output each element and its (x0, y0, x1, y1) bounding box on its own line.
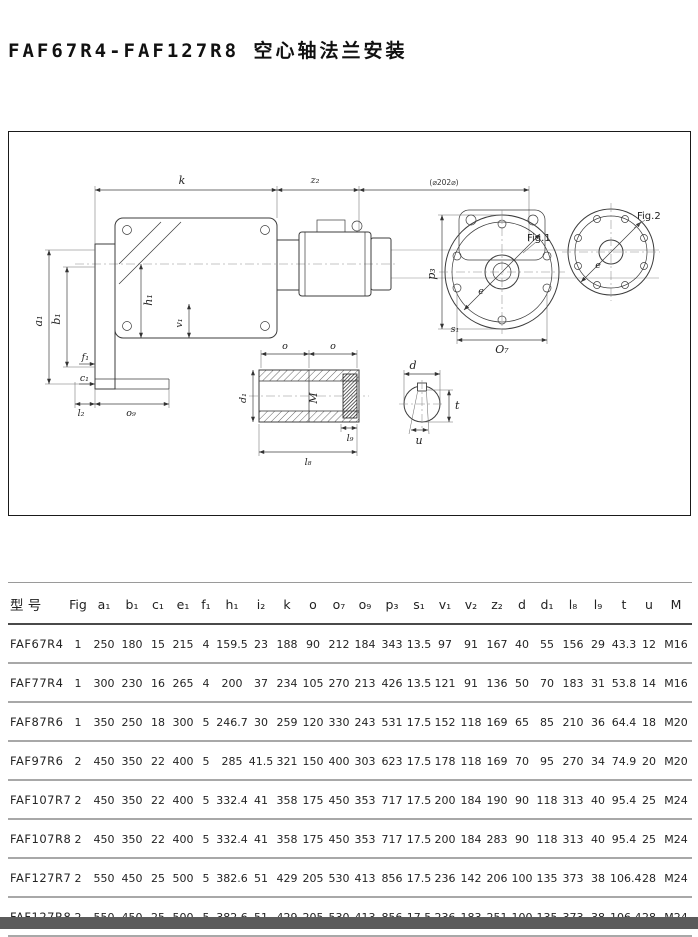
value-cell: 5 (196, 741, 216, 780)
value-cell: 373 (560, 858, 586, 897)
value-cell: 97 (432, 624, 458, 663)
value-cell: 550 (90, 858, 118, 897)
dim-label-a1: a₁ (32, 316, 45, 327)
value-cell: M24 (660, 780, 692, 819)
value-cell: 213 (352, 663, 378, 702)
value-cell: 136 (484, 663, 510, 702)
value-cell: 34 (586, 741, 610, 780)
dim-label-d1: d₁ (238, 393, 249, 403)
value-cell: 313 (560, 780, 586, 819)
value-cell: 300 (90, 663, 118, 702)
value-cell: 382.6 (216, 858, 248, 897)
value-cell: 400 (170, 819, 196, 858)
column-header-6: f₁ (196, 583, 216, 625)
value-cell: 15 (146, 624, 170, 663)
value-cell: 350 (118, 819, 146, 858)
value-cell: 118 (534, 819, 560, 858)
model-cell: FAF107R8 (8, 819, 66, 858)
value-cell: 200 (432, 780, 458, 819)
value-cell: 22 (146, 780, 170, 819)
value-cell: 5 (196, 702, 216, 741)
value-cell: 121 (432, 663, 458, 702)
value-cell: 118 (458, 702, 484, 741)
value-cell: 175 (300, 819, 326, 858)
column-header-14: s₁ (406, 583, 432, 625)
dim-label-t: t (455, 399, 460, 412)
value-cell: 13.5 (406, 663, 432, 702)
value-cell: 37 (248, 663, 274, 702)
value-cell: 5 (196, 858, 216, 897)
value-cell: 4 (196, 624, 216, 663)
value-cell: 106.4 (610, 858, 638, 897)
spec-table-body: FAF67R41250180152154159.5231889021218434… (8, 624, 692, 936)
value-cell: 413 (352, 858, 378, 897)
value-cell: 350 (90, 702, 118, 741)
value-cell: 90 (510, 819, 534, 858)
dim-label-l9: l₉ (347, 433, 354, 444)
value-cell: 4 (196, 663, 216, 702)
value-cell: 717 (378, 780, 406, 819)
value-cell: M20 (660, 702, 692, 741)
column-header-1: Fig (66, 583, 90, 625)
fig1-flange-view: e Fig.1 p₃ s₁ O₇ (425, 210, 565, 356)
column-header-18: d (510, 583, 534, 625)
page-title: FAF67R4-FAF127R8 空心轴法兰安装 (8, 36, 698, 63)
value-cell: 43.3 (610, 624, 638, 663)
value-cell: 188 (274, 624, 300, 663)
value-cell: 184 (352, 624, 378, 663)
value-cell: 105 (300, 663, 326, 702)
dim-label-d: d (409, 359, 416, 372)
value-cell: 259 (274, 702, 300, 741)
dim-label-k: k (179, 174, 186, 187)
column-header-3: b₁ (118, 583, 146, 625)
value-cell: 200 (216, 663, 248, 702)
table-row-FAF127R7: FAF127R72550450255005382.651429205530413… (8, 858, 692, 897)
value-cell: 17.5 (406, 702, 432, 741)
value-cell: 29 (586, 624, 610, 663)
value-cell: 265 (170, 663, 196, 702)
spec-table-header-row: 型 号Figa₁b₁c₁e₁f₁h₁i₂koo₇o₉p₃s₁v₁v₂z₂dd₁l… (8, 583, 692, 625)
value-cell: 118 (458, 741, 484, 780)
model-cell: FAF127R7 (8, 858, 66, 897)
dim-label-v1: v₁ (174, 318, 185, 327)
value-cell: 250 (118, 702, 146, 741)
fig2-flange-view: e Fig.2 (562, 203, 661, 301)
value-cell: 2 (66, 741, 90, 780)
value-cell: 531 (378, 702, 406, 741)
value-cell: 236 (432, 858, 458, 897)
dim-label-b1: b₁ (50, 313, 63, 324)
value-cell: 100 (510, 858, 534, 897)
value-cell: 41 (248, 819, 274, 858)
value-cell: 353 (352, 780, 378, 819)
technical-drawing-panel: k z₂ (⌀202⌀) a₁ b₁ h₁ v₁ f₁ c₁ l₂ o₉ (8, 131, 691, 516)
value-cell: 303 (352, 741, 378, 780)
dim-label-s1: s₁ (451, 324, 460, 335)
value-cell: M20 (660, 741, 692, 780)
column-header-8: i₂ (248, 583, 274, 625)
column-header-20: l₈ (560, 583, 586, 625)
column-header-17: z₂ (484, 583, 510, 625)
dim-label-l8: l₈ (305, 457, 312, 468)
value-cell: 169 (484, 741, 510, 780)
value-cell: 16 (146, 663, 170, 702)
value-cell: 300 (170, 702, 196, 741)
page-footer-bar (0, 917, 698, 929)
column-header-12: o₉ (352, 583, 378, 625)
value-cell: 22 (146, 819, 170, 858)
dim-label-p3: p₃ (425, 268, 438, 279)
value-cell: 18 (638, 702, 660, 741)
value-cell: 17.5 (406, 819, 432, 858)
value-cell: 40 (586, 780, 610, 819)
value-cell: 184 (458, 780, 484, 819)
column-header-24: M (660, 583, 692, 625)
dim-label-e-fig2: e (595, 260, 601, 271)
model-cell: FAF107R7 (8, 780, 66, 819)
dim-label-f1: f₁ (81, 352, 89, 363)
value-cell: 36 (586, 702, 610, 741)
value-cell: 332.4 (216, 780, 248, 819)
value-cell: 215 (170, 624, 196, 663)
dim-label-h1: h₁ (142, 294, 155, 306)
value-cell: 90 (510, 780, 534, 819)
value-cell: M24 (660, 819, 692, 858)
value-cell: 358 (274, 819, 300, 858)
table-row-FAF67R4: FAF67R41250180152154159.5231889021218434… (8, 624, 692, 663)
value-cell: 17.5 (406, 780, 432, 819)
value-cell: 41.5 (248, 741, 274, 780)
value-cell: 152 (432, 702, 458, 741)
dim-label-o-right: o (330, 341, 336, 352)
value-cell: 178 (432, 741, 458, 780)
value-cell: 350 (118, 780, 146, 819)
value-cell: 65 (510, 702, 534, 741)
value-cell: 190 (484, 780, 510, 819)
value-cell: 74.9 (610, 741, 638, 780)
value-cell: 31 (586, 663, 610, 702)
value-cell: 25 (638, 819, 660, 858)
value-cell: 17.5 (406, 858, 432, 897)
value-cell: 450 (326, 819, 352, 858)
model-cell: FAF87R6 (8, 702, 66, 741)
value-cell: 30 (248, 702, 274, 741)
value-cell: 41 (248, 780, 274, 819)
value-cell: 500 (170, 858, 196, 897)
value-cell: 53.8 (610, 663, 638, 702)
value-cell: 1 (66, 624, 90, 663)
column-header-19: d₁ (534, 583, 560, 625)
value-cell: 450 (90, 741, 118, 780)
value-cell: 13.5 (406, 624, 432, 663)
value-cell: 210 (560, 702, 586, 741)
value-cell: 95.4 (610, 819, 638, 858)
value-cell: 40 (510, 624, 534, 663)
value-cell: 40 (586, 819, 610, 858)
value-cell: 14 (638, 663, 660, 702)
model-cell: FAF97R6 (8, 741, 66, 780)
value-cell: 175 (300, 780, 326, 819)
value-cell: 17.5 (406, 741, 432, 780)
value-cell: 234 (274, 663, 300, 702)
value-cell: 12 (638, 624, 660, 663)
value-cell: 429 (274, 858, 300, 897)
value-cell: 5 (196, 819, 216, 858)
value-cell: 400 (326, 741, 352, 780)
value-cell: 450 (90, 819, 118, 858)
value-cell: 332.4 (216, 819, 248, 858)
dim-label-u: u (415, 434, 422, 447)
value-cell: 180 (118, 624, 146, 663)
fig1-label: Fig.1 (527, 233, 551, 244)
dim-label-z2: z₂ (310, 175, 320, 186)
model-cell: FAF67R4 (8, 624, 66, 663)
value-cell: 250 (90, 624, 118, 663)
technical-drawing: k z₂ (⌀202⌀) a₁ b₁ h₁ v₁ f₁ c₁ l₂ o₉ (9, 132, 690, 515)
column-header-11: o₇ (326, 583, 352, 625)
value-cell: 23 (248, 624, 274, 663)
column-header-4: c₁ (146, 583, 170, 625)
value-cell: 85 (534, 702, 560, 741)
column-header-0: 型 号 (8, 583, 66, 625)
value-cell: 55 (534, 624, 560, 663)
value-cell: 230 (118, 663, 146, 702)
value-cell: 70 (510, 741, 534, 780)
value-cell: 330 (326, 702, 352, 741)
model-cell: FAF77R4 (8, 663, 66, 702)
value-cell: 200 (432, 819, 458, 858)
value-cell: 18 (146, 702, 170, 741)
value-cell: 5 (196, 780, 216, 819)
column-header-9: k (274, 583, 300, 625)
dim-label-o9: o₉ (126, 408, 136, 419)
value-cell: 350 (118, 741, 146, 780)
column-header-10: o (300, 583, 326, 625)
column-header-16: v₂ (458, 583, 484, 625)
value-cell: 1 (66, 702, 90, 741)
value-cell: 50 (510, 663, 534, 702)
value-cell: 51 (248, 858, 274, 897)
value-cell: 270 (326, 663, 352, 702)
table-row-FAF97R6: FAF97R6245035022400528541.53211504003036… (8, 741, 692, 780)
value-cell: M16 (660, 663, 692, 702)
table-row-FAF77R4: FAF77R4130023016265420037234105270213426… (8, 663, 692, 702)
column-header-7: h₁ (216, 583, 248, 625)
value-cell: 95.4 (610, 780, 638, 819)
dim-label-l2: l₂ (78, 408, 85, 419)
value-cell: 28 (638, 858, 660, 897)
value-cell: 70 (534, 663, 560, 702)
value-cell: 856 (378, 858, 406, 897)
table-row-FAF107R8: FAF107R82450350224005332.441358175450353… (8, 819, 692, 858)
shaft-section-drawing: d t u (399, 359, 460, 447)
value-cell: 184 (458, 819, 484, 858)
value-cell: 358 (274, 780, 300, 819)
value-cell: 156 (560, 624, 586, 663)
value-cell: 20 (638, 741, 660, 780)
value-cell: 64.4 (610, 702, 638, 741)
dim-label-m: M (307, 392, 320, 405)
value-cell: 91 (458, 663, 484, 702)
value-cell: 150 (300, 741, 326, 780)
value-cell: 167 (484, 624, 510, 663)
value-cell: 25 (638, 780, 660, 819)
value-cell: 321 (274, 741, 300, 780)
value-cell: 90 (300, 624, 326, 663)
table-row-FAF87R6: FAF87R61350250183005246.7302591203302435… (8, 702, 692, 741)
dim-label-o-left: o (282, 341, 288, 352)
value-cell: 623 (378, 741, 406, 780)
value-cell: 450 (90, 780, 118, 819)
column-header-13: p₃ (378, 583, 406, 625)
value-cell: 212 (326, 624, 352, 663)
value-cell: 246.7 (216, 702, 248, 741)
value-cell: 95 (534, 741, 560, 780)
value-cell: 283 (484, 819, 510, 858)
value-cell: 243 (352, 702, 378, 741)
value-cell: 343 (378, 624, 406, 663)
dim-label-c1: c₁ (80, 373, 89, 384)
fig2-label: Fig.2 (637, 211, 661, 222)
column-header-15: v₁ (432, 583, 458, 625)
value-cell: 313 (560, 819, 586, 858)
dim-label-o7: O₇ (495, 343, 509, 356)
dim-label-motor-note: (⌀202⌀) (429, 178, 458, 187)
value-cell: 118 (534, 780, 560, 819)
value-cell: 183 (560, 663, 586, 702)
value-cell: 400 (170, 780, 196, 819)
value-cell: 1 (66, 663, 90, 702)
value-cell: 717 (378, 819, 406, 858)
value-cell: 38 (586, 858, 610, 897)
column-header-21: l₉ (586, 583, 610, 625)
column-header-23: u (638, 583, 660, 625)
hollow-shaft-drawing: o o d₁ M l₉ l₈ (238, 341, 369, 468)
value-cell: 142 (458, 858, 484, 897)
value-cell: 205 (300, 858, 326, 897)
spec-table-head: 型 号Figa₁b₁c₁e₁f₁h₁i₂koo₇o₉p₃s₁v₁v₂z₂dd₁l… (8, 583, 692, 625)
value-cell: 91 (458, 624, 484, 663)
table-row-FAF107R7: FAF107R72450350224005332.441358175450353… (8, 780, 692, 819)
value-cell: 120 (300, 702, 326, 741)
value-cell: 159.5 (216, 624, 248, 663)
column-header-2: a₁ (90, 583, 118, 625)
value-cell: 135 (534, 858, 560, 897)
column-header-22: t (610, 583, 638, 625)
value-cell: 426 (378, 663, 406, 702)
value-cell: 450 (118, 858, 146, 897)
value-cell: M24 (660, 858, 692, 897)
value-cell: M16 (660, 624, 692, 663)
value-cell: 206 (484, 858, 510, 897)
value-cell: 400 (170, 741, 196, 780)
value-cell: 285 (216, 741, 248, 780)
value-cell: 270 (560, 741, 586, 780)
value-cell: 450 (326, 780, 352, 819)
column-header-5: e₁ (170, 583, 196, 625)
value-cell: 353 (352, 819, 378, 858)
dim-label-e-fig1: e (478, 286, 484, 297)
value-cell: 25 (146, 858, 170, 897)
value-cell: 530 (326, 858, 352, 897)
value-cell: 169 (484, 702, 510, 741)
spec-table: 型 号Figa₁b₁c₁e₁f₁h₁i₂koo₇o₉p₃s₁v₁v₂z₂dd₁l… (8, 582, 692, 937)
value-cell: 22 (146, 741, 170, 780)
